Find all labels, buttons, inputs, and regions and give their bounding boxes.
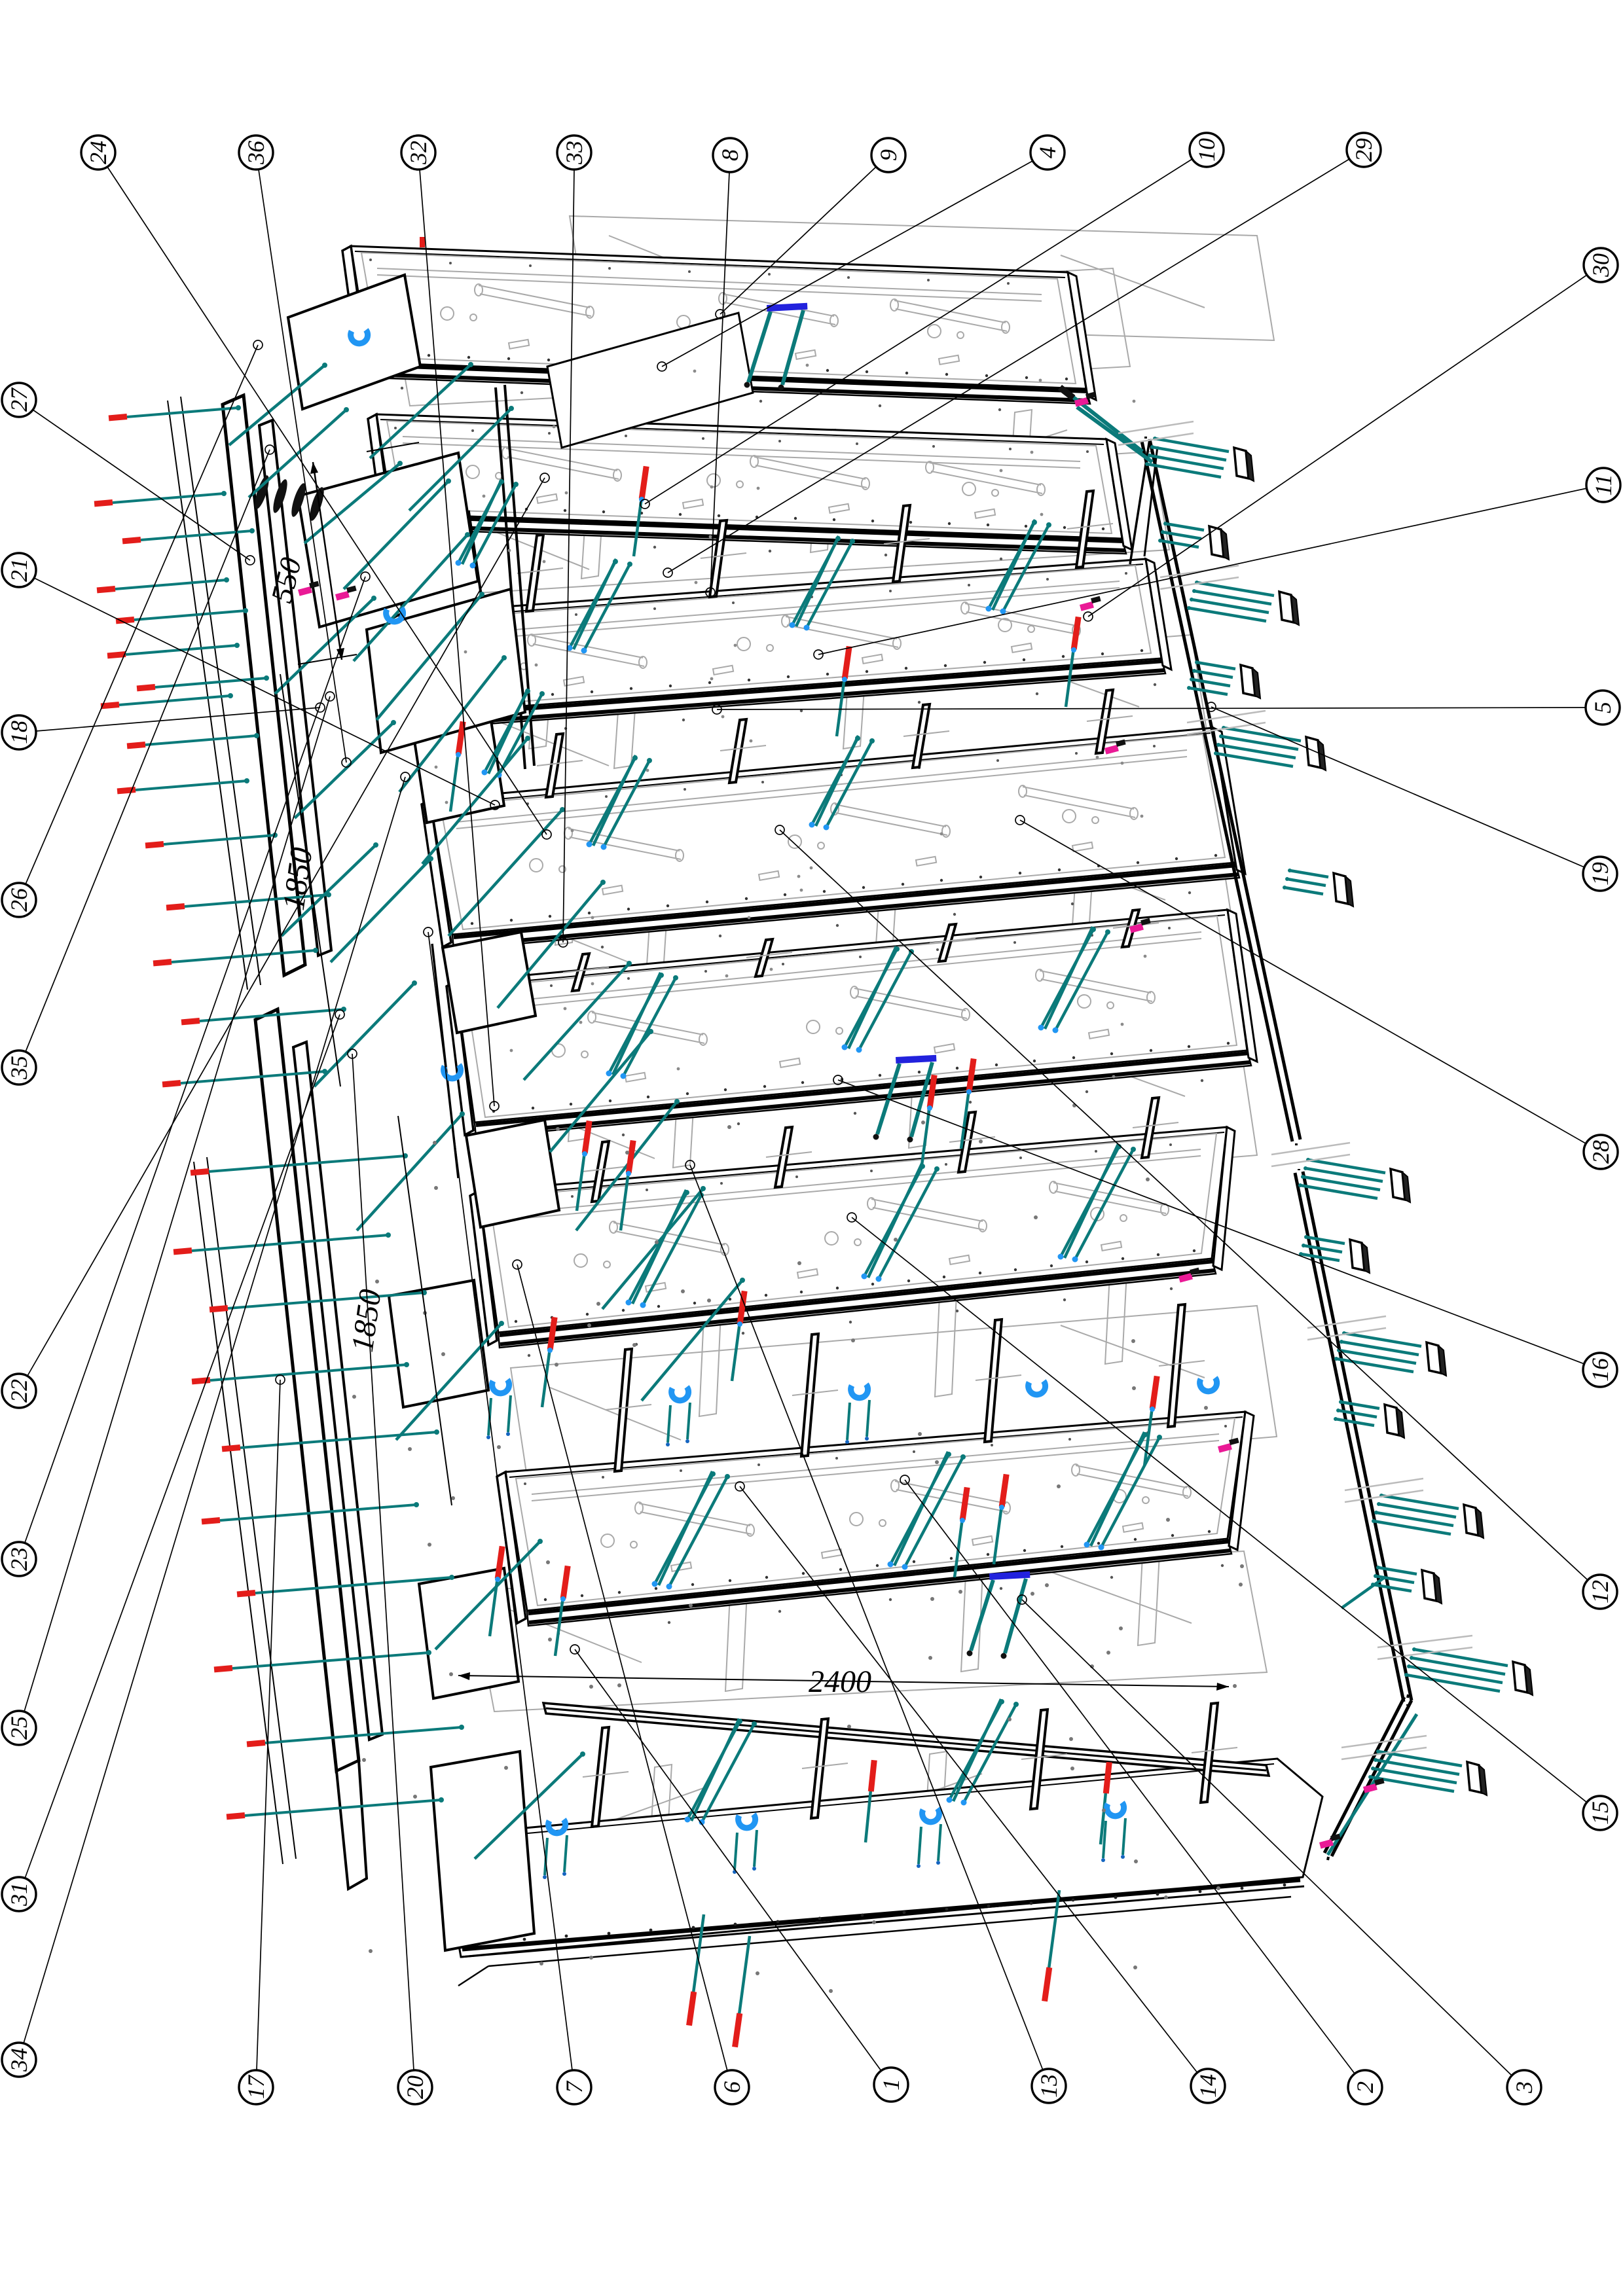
svg-text:29: 29: [1351, 138, 1377, 162]
svg-text:4: 4: [1034, 147, 1061, 158]
svg-text:11: 11: [1590, 474, 1616, 495]
svg-text:33: 33: [561, 141, 587, 165]
svg-text:27: 27: [6, 387, 32, 412]
svg-text:26: 26: [6, 888, 32, 912]
svg-text:1: 1: [878, 2079, 904, 2090]
svg-text:35: 35: [6, 1056, 32, 1080]
svg-text:28: 28: [1588, 1140, 1614, 1164]
svg-text:9: 9: [875, 149, 902, 161]
svg-text:14: 14: [1195, 2074, 1221, 2098]
svg-text:31: 31: [6, 1882, 32, 1907]
svg-text:32: 32: [405, 141, 431, 165]
svg-text:8: 8: [717, 149, 743, 161]
svg-text:7: 7: [561, 2080, 587, 2093]
svg-text:6: 6: [719, 2081, 745, 2093]
svg-text:21: 21: [6, 558, 32, 582]
svg-text:25: 25: [6, 1716, 32, 1740]
svg-text:20: 20: [402, 2075, 428, 2099]
svg-text:10: 10: [1194, 138, 1220, 162]
svg-text:5: 5: [1590, 702, 1616, 713]
svg-text:24: 24: [85, 141, 111, 164]
svg-text:18: 18: [6, 721, 32, 744]
svg-text:16: 16: [1587, 1358, 1613, 1382]
svg-text:36: 36: [243, 141, 269, 165]
svg-text:13: 13: [1036, 2074, 1062, 2098]
svg-text:17: 17: [243, 2074, 269, 2099]
svg-text:30: 30: [1588, 253, 1614, 278]
svg-text:19: 19: [1587, 862, 1613, 886]
svg-text:3: 3: [1511, 2081, 1537, 2094]
svg-text:2: 2: [1352, 2081, 1378, 2093]
svg-text:23: 23: [6, 1547, 32, 1571]
svg-text:15: 15: [1587, 1801, 1613, 1825]
svg-text:12: 12: [1587, 1580, 1613, 1604]
svg-text:34: 34: [6, 2048, 32, 2072]
svg-text:22: 22: [6, 1379, 32, 1403]
